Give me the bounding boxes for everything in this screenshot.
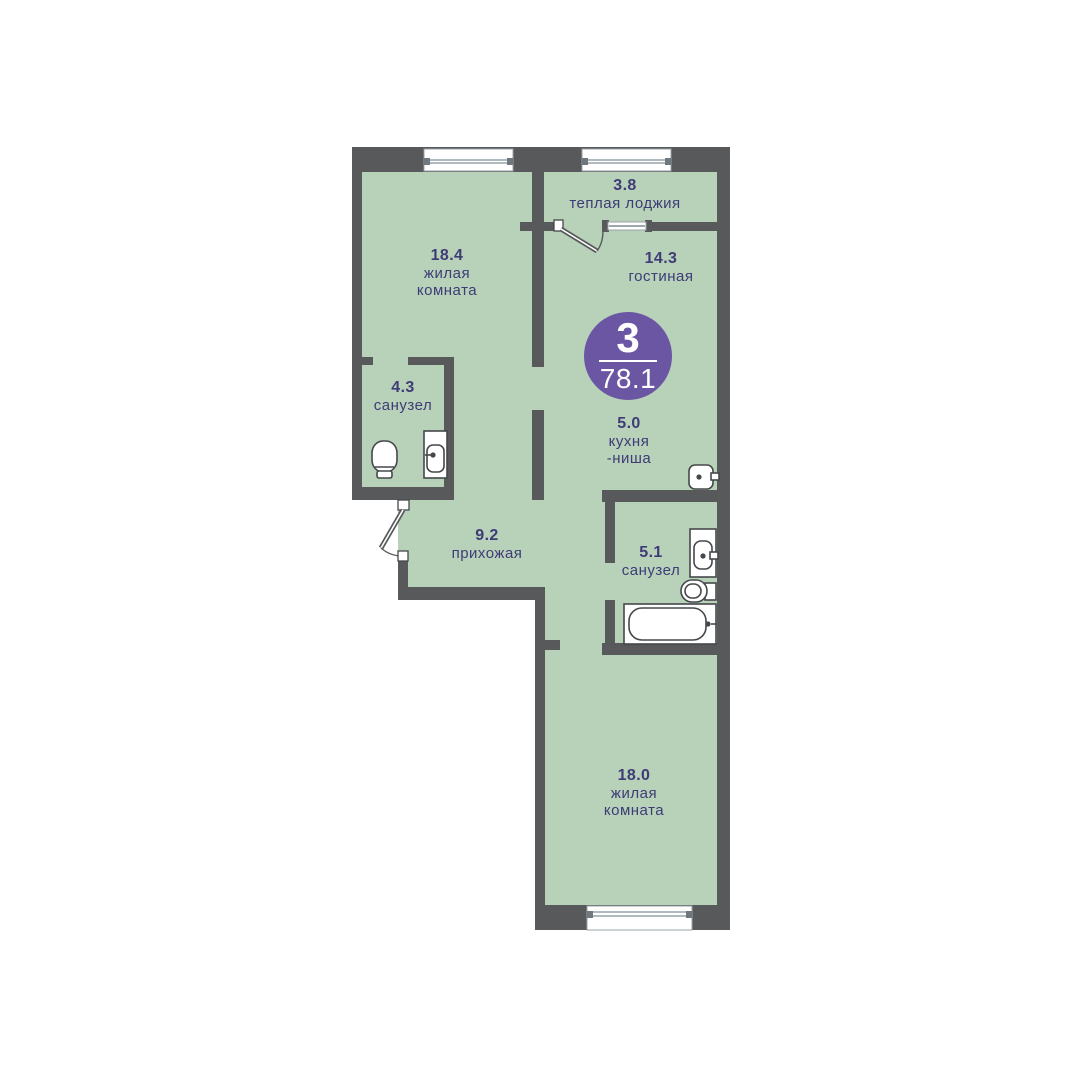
room-area-value: 18.0: [604, 767, 664, 785]
room-area-value: 14.3: [629, 250, 694, 268]
wall-central-lower: [532, 410, 544, 500]
room-label-living-2: 18.0жилаякомната: [604, 767, 664, 819]
room-name-line: комната: [604, 803, 664, 819]
wall-loggia-right: [652, 222, 717, 231]
room-area-value: 4.3: [374, 379, 432, 397]
sink-icon: [690, 529, 718, 577]
room-area-value: 5.1: [622, 544, 680, 562]
room-name-line: санузел: [622, 563, 680, 579]
room-area-value: 5.0: [607, 415, 652, 433]
room-label-kitchen-niche: 5.0кухня-ниша: [607, 415, 652, 467]
toilet-icon: [681, 580, 716, 602]
room-label-living-1: 18.4жилаякомната: [417, 247, 477, 299]
room-name-line: кухня: [607, 434, 652, 450]
wall-bath2-top: [602, 490, 717, 502]
wall-stub-bottom-room: [545, 640, 560, 650]
wall-central-upper: [532, 172, 544, 367]
wall-outer-top: [352, 147, 730, 172]
wall-bath1-bottom: [352, 487, 454, 500]
room-name-line: жилая: [604, 786, 664, 802]
window-top-right: [582, 149, 671, 171]
room-name-line: гостиная: [629, 269, 694, 285]
wall-bath2-left-lower: [605, 600, 615, 647]
wall-hallway-bottom: [398, 587, 545, 600]
room-area-value: 3.8: [569, 177, 680, 195]
wall-outer-right: [717, 147, 730, 930]
badge-total-area: 78.1: [600, 365, 657, 393]
room-name-line: комната: [417, 283, 477, 299]
wall-outer-left: [352, 147, 362, 500]
room-label-lounge: 14.3гостиная: [629, 250, 694, 285]
wall-bath2-left-upper: [605, 502, 615, 563]
wall-outer-bottom-left: [535, 587, 545, 930]
window-bottom: [587, 906, 692, 930]
bathtub-icon: [624, 604, 717, 644]
room-name-line: теплая лоджия: [569, 196, 680, 212]
room-name-line: -ниша: [607, 451, 652, 467]
room-name-line: прихожая: [452, 546, 523, 562]
sink-icon: [424, 431, 447, 478]
floor-plan-drawing: [0, 0, 1080, 1080]
room-name-line: жилая: [417, 266, 477, 282]
badge-divider: [599, 360, 657, 362]
room-area-value: 9.2: [452, 527, 523, 545]
room-area-value: 18.4: [417, 247, 477, 265]
wall-bath1-top-left: [362, 357, 373, 365]
apartment-badge: 3 78.1: [584, 312, 672, 400]
window-loggia-inner: [602, 220, 652, 232]
room-label-bathroom-1: 4.3санузел: [374, 379, 432, 414]
wall-entry-lower: [398, 558, 408, 590]
badge-rooms-count: 3: [616, 320, 639, 356]
window-top-left: [424, 149, 513, 171]
room-label-hallway: 9.2прихожая: [452, 527, 523, 562]
room-label-loggia: 3.8теплая лоджия: [569, 177, 680, 212]
room-label-bathroom-2: 5.1санузел: [622, 544, 680, 579]
wall-loggia-left: [520, 222, 556, 231]
floor-plan-canvas: 18.4жилаякомната3.8теплая лоджия14.3гост…: [0, 0, 1080, 1080]
room-name-line: санузел: [374, 398, 432, 414]
